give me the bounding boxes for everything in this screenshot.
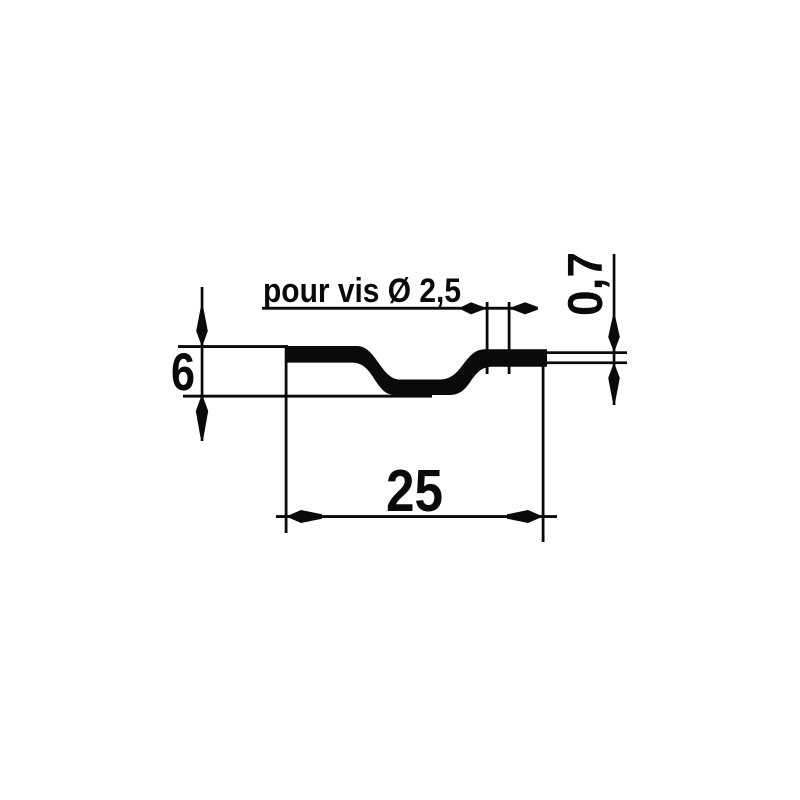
svg-text:pour vis Ø 2,5: pour vis Ø 2,5 xyxy=(263,272,461,310)
svg-text:0,7: 0,7 xyxy=(559,252,613,316)
svg-text:6: 6 xyxy=(171,343,195,402)
svg-text:25: 25 xyxy=(386,458,443,524)
